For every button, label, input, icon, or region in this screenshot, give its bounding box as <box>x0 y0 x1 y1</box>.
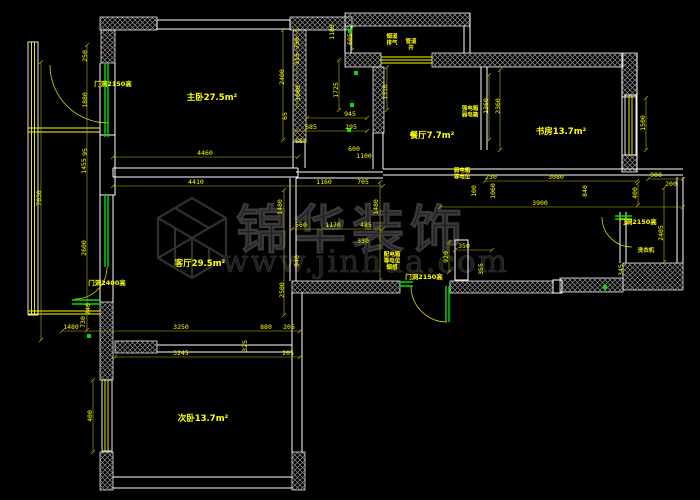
annotation-label: 井 <box>408 44 414 52</box>
dimension-text: 3080 <box>548 173 564 181</box>
cad-canvas[interactable]: 锦华装饰 www.jinhua.com <box>0 0 700 500</box>
dimension-text: 200 <box>665 180 677 188</box>
dimension-text: 1180 <box>328 24 336 40</box>
door-opening-label: 门洞2150高 <box>94 79 132 88</box>
dimension-text: 880 <box>295 137 307 145</box>
annotation-label: 管道 <box>405 37 417 45</box>
dimension-text: 940 <box>293 255 301 267</box>
dimension-text: 330 <box>357 237 369 245</box>
dimension-text: 3900 <box>532 199 548 207</box>
dimension-text: 95 <box>81 148 89 156</box>
dimension-text: 1360 <box>482 98 490 114</box>
dimension-text: 7030 <box>35 190 43 206</box>
dimension-text: 3245 <box>173 349 189 357</box>
dimension-text: 1480 <box>276 199 284 215</box>
dimension-text: 2500 <box>278 282 286 298</box>
dimension-text: 4460 <box>197 149 213 157</box>
dimension-text: 900 <box>650 171 662 179</box>
dimension-text: 560 <box>295 221 307 229</box>
annotation-label: 弱电箱 <box>462 111 479 119</box>
dimension-text: 1170 <box>325 221 341 229</box>
dimension-text: 2400 <box>278 69 286 85</box>
dimension-text: 350 <box>458 242 470 250</box>
dimension-text: 205 <box>282 349 294 357</box>
dimension-text: 1725 <box>332 82 340 98</box>
dimension-text: 325 <box>241 340 249 352</box>
room-label: 餐厅7.7m² <box>409 130 455 141</box>
dimension-text: 205 <box>283 323 295 331</box>
dimension-text: 2600 <box>80 240 88 256</box>
dimension-text: 685 <box>305 123 317 131</box>
dimension-text: 115 <box>293 53 301 65</box>
annotation-label: 等电位 <box>453 173 471 181</box>
door-opening-label: 门洞2400高 <box>88 278 126 287</box>
dimension-text: 730 <box>79 316 87 328</box>
annotation-label: 烟道 <box>386 32 398 40</box>
room-label: 主卧27.5m² <box>187 92 238 103</box>
dimension-text: 920 <box>442 251 450 263</box>
dimension-text: 1455 <box>80 158 88 174</box>
dimension-text: 1060 <box>489 183 497 199</box>
dimension-text: 100 <box>470 185 478 197</box>
dimension-text: 250 <box>81 50 89 62</box>
dimension-text: 730 <box>293 37 301 49</box>
dimension-text: 230 <box>485 173 497 181</box>
dimension-text: 3250 <box>173 323 189 331</box>
dimension-text: 1880 <box>81 92 89 108</box>
dimension-text: 705 <box>357 178 369 186</box>
dimension-text: 1160 <box>316 178 332 186</box>
dimension-text: 400 <box>631 187 639 199</box>
room-label: 次卧13.7m² <box>178 413 229 424</box>
dimension-text: 400 <box>86 410 94 422</box>
annotation-label: 弱电箱 <box>454 166 471 174</box>
annotation-label: 强电箱 <box>462 104 479 112</box>
dimension-text: 880 <box>260 323 272 331</box>
room-label: 书房13.7m² <box>536 126 587 137</box>
dimension-text: 605 <box>346 33 354 45</box>
dimension-text: 1680 <box>294 85 302 101</box>
annotation-label: 洗衣机 <box>638 246 655 254</box>
annotation-label: 配电箱 <box>384 250 401 258</box>
floor-plan-svg: 锦华装饰 www.jinhua.com <box>0 0 700 500</box>
dimension-text: 4410 <box>188 178 204 186</box>
dimension-text: 1510 <box>381 84 389 100</box>
dimension-text: 945 <box>344 110 356 118</box>
annotation-label: 烟感 <box>386 263 398 271</box>
dimension-text: 1480 <box>63 323 79 331</box>
dimension-text: 240 <box>84 303 92 315</box>
door-opening-label: 门洞2150高 <box>619 217 657 226</box>
room-label: 客厅29.5m² <box>174 258 226 269</box>
dimension-text: 295 <box>345 123 357 131</box>
dimension-text: 840 <box>581 185 589 197</box>
dimension-text: 1100 <box>356 152 372 160</box>
dimension-text: 1480 <box>372 199 380 215</box>
dimension-text: 1500 <box>639 115 647 131</box>
dimension-text: 355 <box>477 263 485 275</box>
door-opening-label: 门洞2150高 <box>405 272 443 281</box>
dimension-text: 345 <box>617 264 625 276</box>
dimension-text: 485 <box>360 221 372 229</box>
dimension-text: 65 <box>281 112 289 120</box>
dimension-text: 2360 <box>494 98 502 114</box>
dimension-text: 2405 <box>657 225 665 241</box>
annotation-label: 等电位 <box>383 257 401 265</box>
annotation-label: 排气 <box>386 39 398 47</box>
